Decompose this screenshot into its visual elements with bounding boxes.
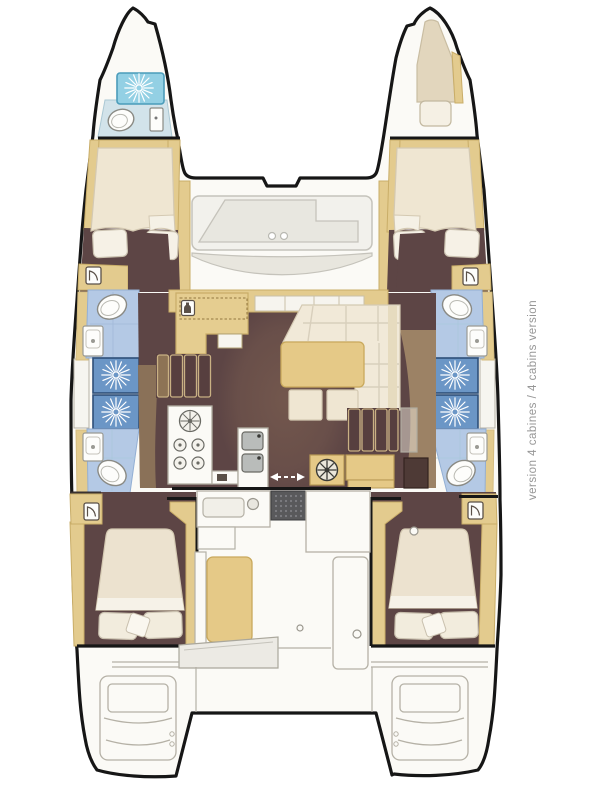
svg-text:version 4 cabines / 4 cabins v: version 4 cabines / 4 cabins version <box>527 300 539 500</box>
